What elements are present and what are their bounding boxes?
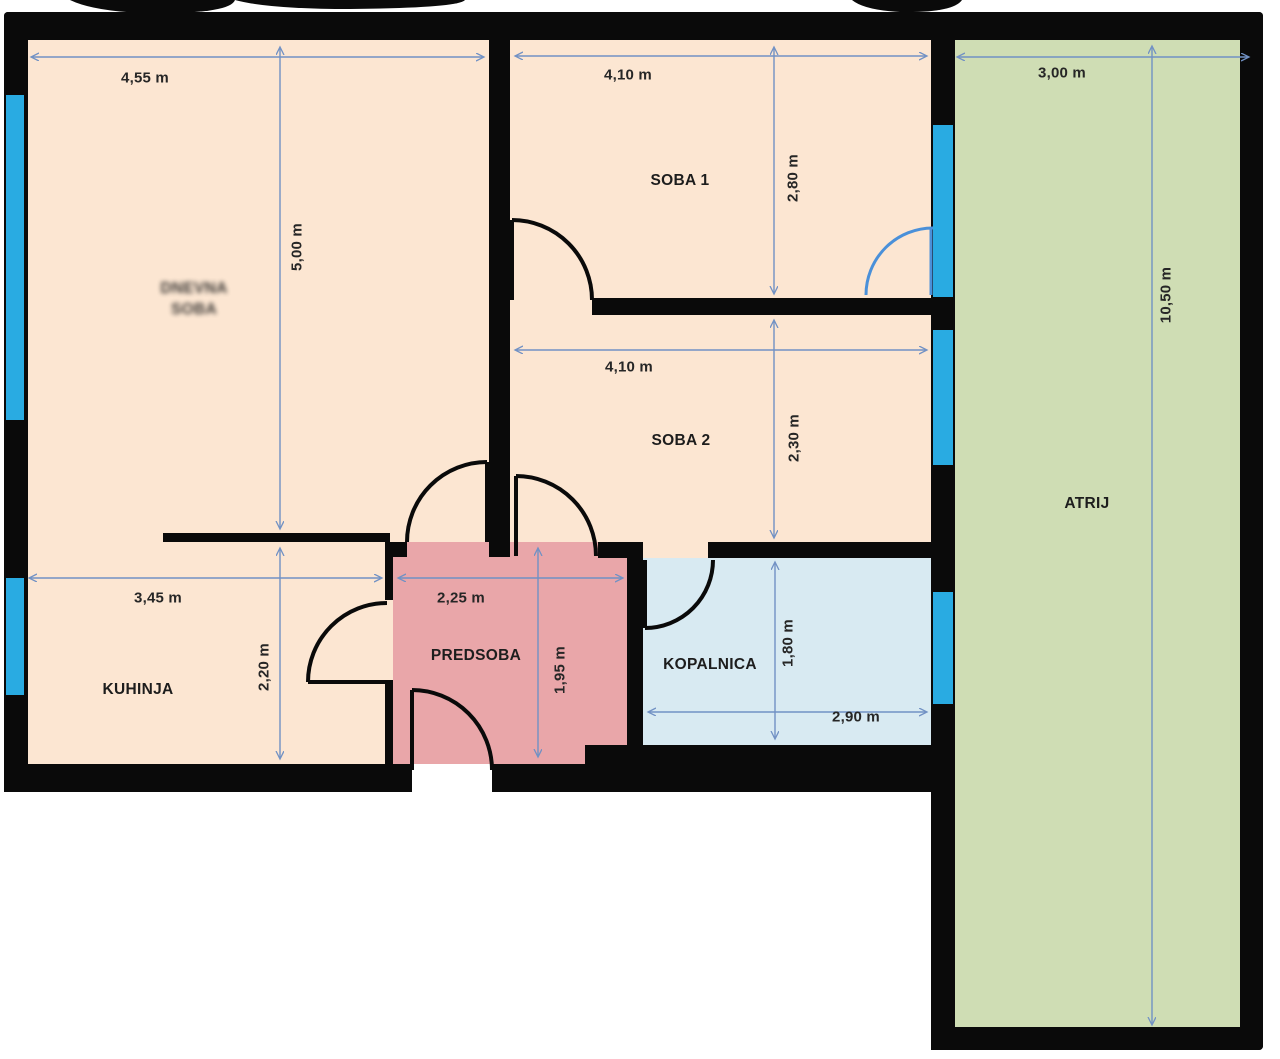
wall-atrium-bottom [931, 1027, 1263, 1050]
room-label-atrij: ATRIJ [1064, 495, 1109, 513]
dim-label-predsoba-width: 2,25 m [437, 590, 485, 607]
room-label-kopalnica: KOPALNICA [663, 656, 757, 674]
wall-top [4, 12, 1263, 40]
dim-label-soba1-width: 4,10 m [604, 67, 652, 84]
wall-kitchen-divider [163, 533, 390, 542]
window-kopalnica-right [933, 592, 953, 704]
wall-soba2-bottom-b [708, 542, 931, 558]
wall-bottom-left [4, 764, 412, 792]
wall-living-divider [489, 40, 510, 557]
top-edge-artifact-3 [852, 0, 962, 12]
wall-predsoba-left-b [385, 680, 393, 764]
window-kitchen-left [6, 578, 24, 695]
room-label-dnevna-soba-line1: DNEVNA [160, 278, 227, 299]
wall-soba2-bottom-a [598, 542, 643, 558]
wall-soba1-soba2 [592, 298, 931, 315]
dim-label-kopalnica-height: 1,80 m [780, 619, 797, 667]
dim-label-living-width: 4,55 m [121, 70, 169, 87]
room-label-dnevna-soba-line2: SOBA [160, 299, 227, 320]
room-label-dnevna-soba: DNEVNA SOBA [160, 278, 227, 320]
dim-label-atrij-height: 10,50 m [1158, 267, 1175, 323]
wall-predsoba-kopalnica [627, 558, 643, 745]
dim-label-kopalnica-width: 2,90 m [832, 709, 880, 726]
window-soba2-right [933, 330, 953, 465]
dim-label-kuhinja-width: 3,45 m [134, 590, 182, 607]
dim-label-soba2-height: 2,30 m [786, 414, 803, 462]
window-soba1-right [933, 125, 953, 297]
window-living-left [6, 95, 24, 420]
dim-label-living-height: 5,00 m [289, 223, 306, 271]
dim-label-predsoba-height: 1,95 m [552, 646, 569, 694]
room-atrij [955, 40, 1240, 1027]
floor-plan-drawing [0, 0, 1280, 1059]
floor-plan: DNEVNA SOBA SOBA 1 SOBA 2 KUHINJA PREDSO… [0, 0, 1280, 1059]
top-edge-artifact-1 [70, 0, 235, 13]
top-edge-artifact-2 [235, 0, 465, 9]
dim-label-atrij-width: 3,00 m [1038, 65, 1086, 82]
room-label-soba2: SOBA 2 [652, 432, 711, 450]
dim-label-soba1-height: 2,80 m [785, 154, 802, 202]
room-label-predsoba: PREDSOBA [431, 647, 521, 665]
dim-label-soba2-width: 4,10 m [605, 359, 653, 376]
dim-label-kuhinja-height: 2,20 m [256, 643, 273, 691]
wall-band-below-bath [585, 745, 955, 792]
wall-atrium-right [1240, 12, 1263, 1050]
wall-bottom-mid [492, 764, 596, 792]
room-label-kuhinja: KUHINJA [103, 681, 174, 699]
wall-predsoba-left-a [385, 542, 393, 600]
room-label-soba1: SOBA 1 [651, 172, 710, 190]
